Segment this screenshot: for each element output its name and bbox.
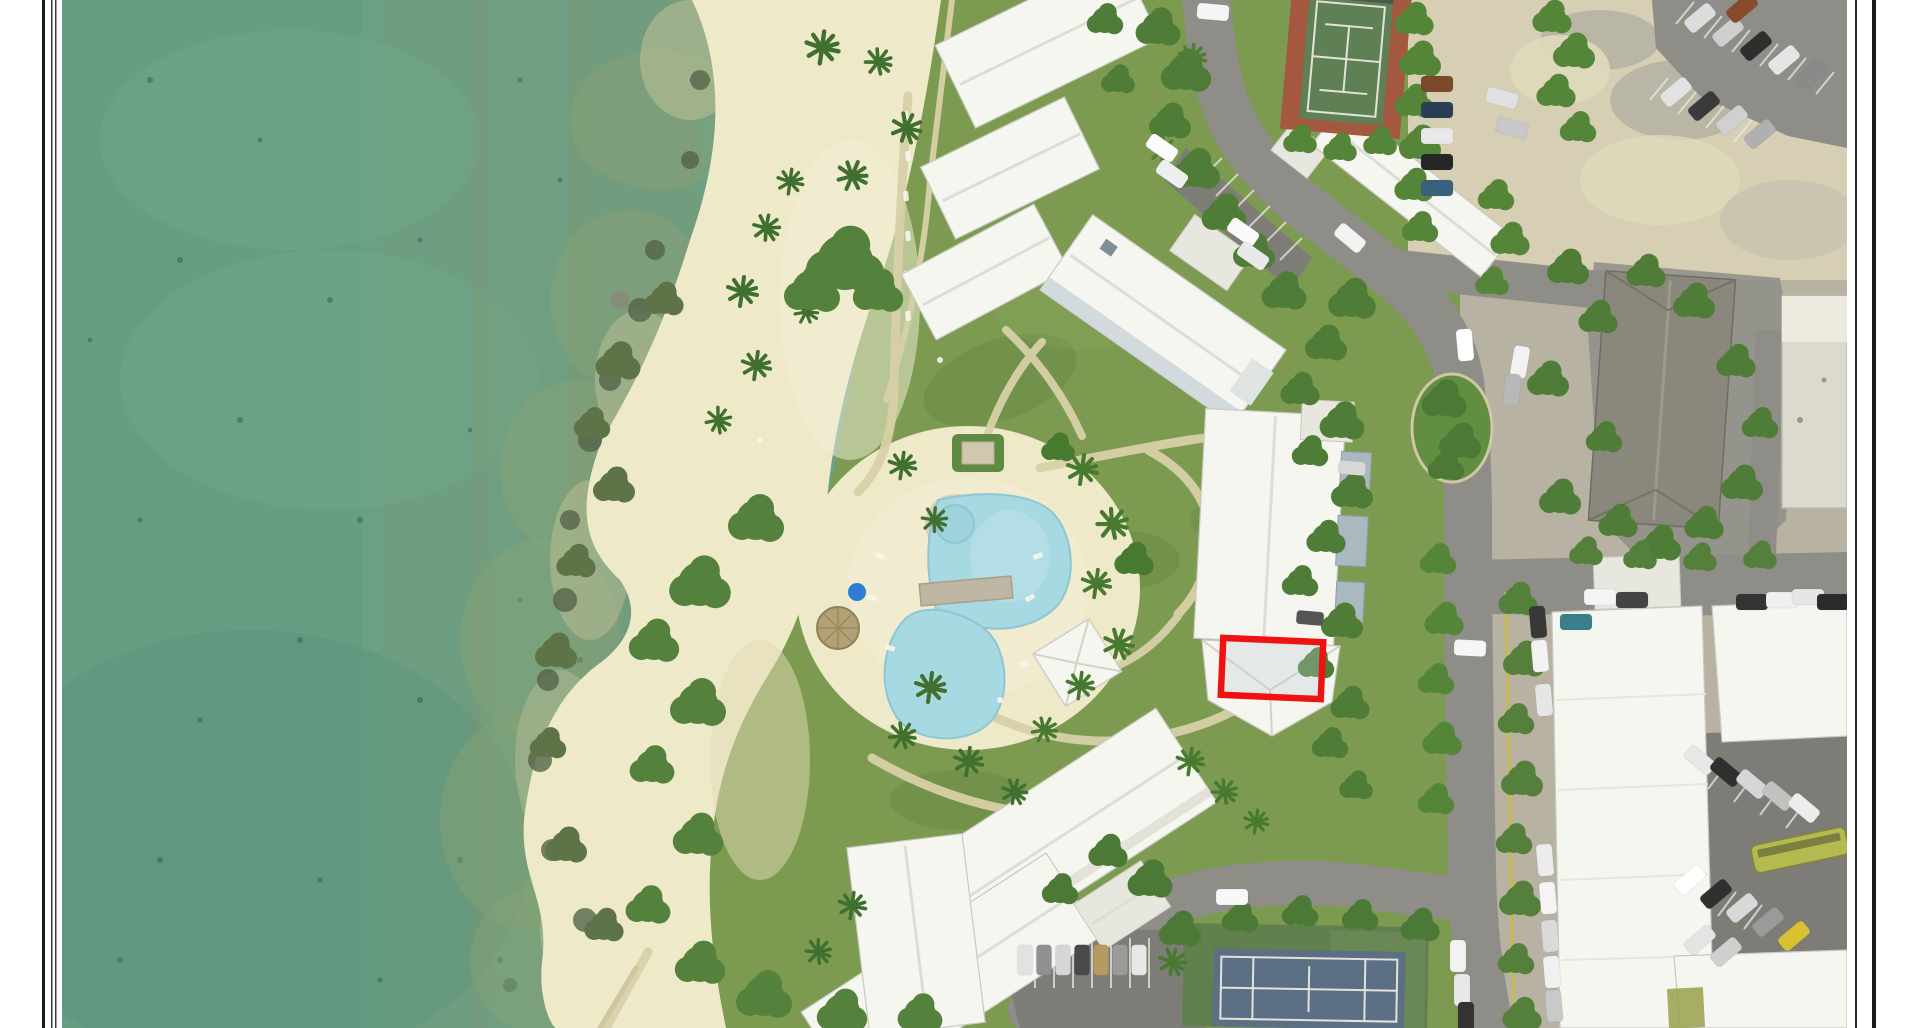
aerial-photo bbox=[0, 0, 1920, 1028]
parcel-highlight bbox=[1221, 638, 1323, 699]
right-border-rule-thick bbox=[1872, 0, 1876, 1028]
tennis-court-north bbox=[1280, 0, 1413, 139]
right-border-rule-thin bbox=[1855, 0, 1857, 1028]
left-border-rule-thick bbox=[42, 0, 45, 1028]
left-border-rule-thin-2 bbox=[55, 0, 57, 1028]
flat-roof-building bbox=[1782, 296, 1847, 508]
beach-umbrella bbox=[848, 583, 866, 601]
palapa-hut bbox=[817, 607, 859, 649]
plat-map-page bbox=[0, 0, 1920, 1028]
left-border-rule-thin-1 bbox=[51, 0, 53, 1028]
pool-cabana bbox=[952, 434, 1004, 472]
tennis-court-south bbox=[1182, 923, 1429, 1028]
